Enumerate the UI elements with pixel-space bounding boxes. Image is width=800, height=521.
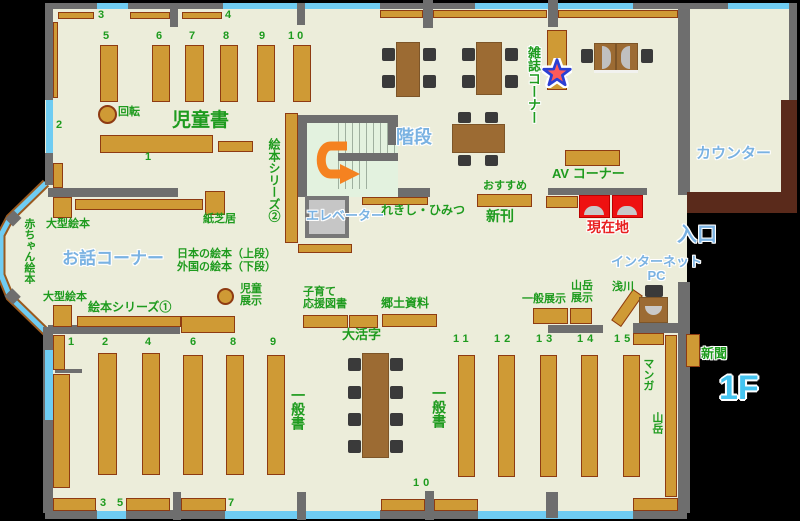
- shelf-number: 9: [259, 31, 266, 43]
- picture-series-2-shelf: [285, 113, 298, 243]
- sofa-end-table: [581, 49, 593, 63]
- shelf-6: [152, 45, 170, 102]
- shelf-number: 8: [230, 337, 237, 349]
- chair: [485, 112, 498, 123]
- mountain-display-shelf: [570, 308, 592, 324]
- general-display-shelf: [533, 308, 568, 324]
- japanese-picture-books-label: 日本の絵本（上段）: [177, 249, 276, 261]
- shelf-12-general: [498, 355, 515, 477]
- wall-post: [423, 0, 433, 28]
- wall: [633, 3, 678, 9]
- shelf-number: 4: [225, 10, 232, 22]
- internet-pc-label: インターネット PC: [611, 255, 702, 283]
- top-shelf: [58, 12, 94, 19]
- shelf-number: 8: [223, 31, 230, 43]
- wall-post: [297, 3, 305, 25]
- picture-series-2-label: 絵本シリーズ②: [267, 138, 280, 248]
- elevator-label: エレベーター: [306, 209, 384, 223]
- shelf-13-general: [540, 355, 557, 477]
- newspaper-shelf: [686, 334, 700, 367]
- large-picture-books-label: 大型絵本: [43, 292, 87, 304]
- floor-badge: 1F: [719, 370, 759, 407]
- top-shelf: [182, 12, 222, 19]
- wall-post: [546, 492, 558, 518]
- chair: [390, 440, 403, 453]
- general-books-label: 一般書: [431, 386, 446, 440]
- wall-post: [425, 491, 434, 520]
- wall-post: [297, 492, 306, 520]
- shelf-2-general: [98, 353, 117, 475]
- chair: [458, 112, 471, 123]
- internet-line: インターネット: [611, 254, 702, 269]
- picture-series-1-shelf: [181, 316, 235, 333]
- window-segment: [46, 100, 53, 153]
- mountain-display-line2: 展示: [571, 292, 593, 304]
- sofa-base-line: [594, 70, 638, 73]
- shelf-1-children: [100, 135, 213, 153]
- stairs-label: 階段: [396, 128, 432, 147]
- kamishibai-shelf: [205, 191, 225, 215]
- left-wall-shelf: [53, 163, 63, 188]
- shelf-4-general: [142, 353, 160, 475]
- shelf: [218, 141, 253, 152]
- wall: [45, 510, 97, 519]
- reading-table: [396, 42, 420, 97]
- wall: [690, 3, 728, 9]
- library-floor-map: 3 4 5 6 7 8 9 10 2 1 1 2 4 6 8 9 11 12 1…: [0, 0, 800, 521]
- av-corner-shelf: [565, 150, 620, 166]
- wall: [48, 188, 178, 197]
- new-arrivals-label: 新刊: [486, 209, 514, 224]
- shelf-number: 11: [453, 334, 473, 346]
- shelf-1-general: [53, 335, 65, 370]
- shelf-14-general: [581, 355, 598, 477]
- large-picture-books-label: 大型絵本: [46, 219, 90, 231]
- chair: [423, 48, 436, 61]
- chair: [505, 48, 518, 61]
- stairwell: [298, 115, 398, 197]
- general-books-label: 一般書: [290, 388, 305, 438]
- foreign-picture-books-label: 外国の絵本（下段）: [177, 262, 276, 274]
- entrance-label: 入口: [677, 225, 717, 247]
- star-icon: [542, 58, 572, 88]
- magazine-corner-label: 雑誌コーナー: [526, 46, 540, 130]
- childcare-label: 子育て 応援図書: [303, 287, 347, 311]
- shelf-number: 3: [100, 498, 107, 510]
- shelf-6-general: [183, 355, 203, 475]
- wall-post: [548, 0, 558, 27]
- chair: [382, 48, 395, 61]
- gate-sensor: [617, 206, 637, 215]
- shelf-10: [293, 45, 311, 102]
- shelf: [75, 199, 203, 210]
- shelf-number: 12: [494, 334, 514, 346]
- bottom-shelf: [633, 498, 678, 511]
- shelf-number: 7: [228, 498, 235, 510]
- shelf-9-general: [267, 355, 285, 475]
- chair: [348, 358, 361, 371]
- shelf-number: 15: [614, 334, 634, 346]
- picture-series-1-label: 絵本シリーズ①: [88, 301, 171, 314]
- shelf-number: 3: [98, 10, 105, 22]
- pc-monitor: [645, 285, 663, 297]
- av-corner-label: AV コーナー: [552, 167, 625, 181]
- shelf-number: 1: [68, 337, 75, 349]
- counter-label: カウンター: [696, 146, 771, 162]
- u-turn-arrow-icon: [298, 115, 398, 197]
- shelf-8: [220, 45, 238, 102]
- mountain-display-line1: 山岳: [571, 280, 593, 292]
- chair: [462, 48, 475, 61]
- recommended-label: おすすめ: [483, 181, 527, 193]
- shelf: [546, 196, 578, 208]
- window-segment: [558, 3, 633, 9]
- chair: [348, 413, 361, 426]
- shelf-8-general: [226, 355, 244, 475]
- wall: [548, 188, 647, 195]
- mountain-label: 山岳: [650, 412, 662, 440]
- children-books-label: 児童書: [172, 111, 229, 132]
- counter-desk: [781, 100, 797, 213]
- mountain-display-label: 山岳 展示: [571, 281, 593, 305]
- children-display-line2: 展示: [240, 295, 262, 307]
- children-display-table: [217, 288, 234, 305]
- history-secrets-label: れきし・ひみつ: [381, 204, 465, 217]
- chair: [505, 75, 518, 88]
- chair: [485, 155, 498, 166]
- sofa-end-table: [641, 49, 653, 63]
- gate-sensor: [584, 206, 604, 215]
- wall: [45, 153, 53, 185]
- chair: [390, 358, 403, 371]
- shelf-number: 1: [145, 152, 152, 164]
- window-segment: [475, 3, 548, 9]
- large-picture-books-shelf: [53, 305, 72, 327]
- chair: [462, 75, 475, 88]
- reading-table: [452, 124, 505, 153]
- wall: [678, 282, 690, 513]
- baby-picture-books-label: 赤ちゃん絵本: [22, 218, 34, 298]
- picture-series-1-shelf: [77, 316, 181, 327]
- manga-label: マンガ: [641, 358, 653, 400]
- chair: [382, 75, 395, 88]
- chair: [348, 440, 361, 453]
- window-segment: [97, 511, 126, 519]
- new-arrivals-shelf: [477, 194, 532, 207]
- childcare-line2: 応援図書: [303, 298, 347, 310]
- asakawa-label: 浅川: [612, 282, 634, 294]
- left-wall-shelf: [53, 22, 58, 98]
- story-corner-label: お話コーナー: [62, 250, 164, 268]
- wall: [548, 325, 603, 333]
- children-display-line1: 児童: [240, 283, 262, 295]
- bottom-shelf: [434, 499, 478, 511]
- general-display-label: 一般展示: [522, 294, 566, 306]
- shelf-11-general: [458, 355, 475, 477]
- bottom-shelf: [181, 498, 226, 511]
- bottom-shelf: [381, 499, 425, 511]
- shelf: [298, 244, 352, 253]
- children-display-label: 児童 展示: [240, 284, 262, 308]
- shelf-number: 5: [103, 31, 110, 43]
- bottom-shelf: [126, 498, 170, 511]
- rotation-label: 回転: [118, 107, 140, 119]
- pc-line: PC: [647, 268, 665, 283]
- shelf: [633, 333, 664, 345]
- shelf-number: 2: [56, 120, 63, 132]
- rotating-rack: [98, 105, 117, 124]
- study-table: [362, 353, 389, 458]
- top-shelf: [130, 12, 170, 19]
- mountain-shelf: [665, 335, 677, 497]
- shelf-number: 10: [288, 31, 306, 43]
- shelf-number: 6: [190, 337, 197, 349]
- chair: [423, 75, 436, 88]
- shelf-number: 13: [536, 334, 556, 346]
- top-shelf: [380, 10, 423, 18]
- chair: [348, 386, 361, 399]
- top-shelf: [558, 10, 678, 18]
- newspaper-label: 新聞: [701, 347, 727, 361]
- window-segment: [728, 3, 789, 9]
- wall: [789, 3, 797, 102]
- current-location-label: 現在地: [587, 220, 629, 235]
- wall: [633, 323, 678, 333]
- wall-post: [678, 3, 690, 195]
- bottom-shelf: [53, 498, 96, 511]
- shelf-5: [100, 45, 118, 102]
- wall-post: [170, 3, 178, 27]
- reading-table: [476, 42, 502, 95]
- shelf-number: 14: [577, 334, 597, 346]
- wall: [45, 3, 53, 100]
- shelf-number: 10: [413, 478, 433, 490]
- wall-post: [173, 492, 181, 520]
- chair: [390, 386, 403, 399]
- shelf-number: 5: [117, 498, 124, 510]
- local-materials-shelf: [382, 314, 437, 327]
- shelf-1-general: [53, 374, 70, 488]
- sofa-cushion: [621, 46, 630, 69]
- large-picture-books-shelf: [53, 197, 72, 218]
- window-segment: [45, 350, 53, 420]
- shelf-number: 7: [189, 31, 196, 43]
- shelf-number: 2: [102, 337, 109, 349]
- large-print-label: 大活字: [342, 328, 381, 342]
- shelf-number: 9: [270, 337, 277, 349]
- local-materials-label: 郷土資料: [381, 297, 429, 310]
- kamishibai-label: 紙芝居: [203, 214, 236, 226]
- top-shelf: [433, 10, 547, 18]
- shelf-number: 6: [156, 31, 163, 43]
- shelf-7: [185, 45, 204, 102]
- shelf-15-general: [623, 355, 640, 477]
- chair: [458, 155, 471, 166]
- childcare-line1: 子育て: [303, 286, 336, 298]
- shelf-number: 4: [145, 337, 152, 349]
- chair: [390, 413, 403, 426]
- shelf-9: [257, 45, 275, 102]
